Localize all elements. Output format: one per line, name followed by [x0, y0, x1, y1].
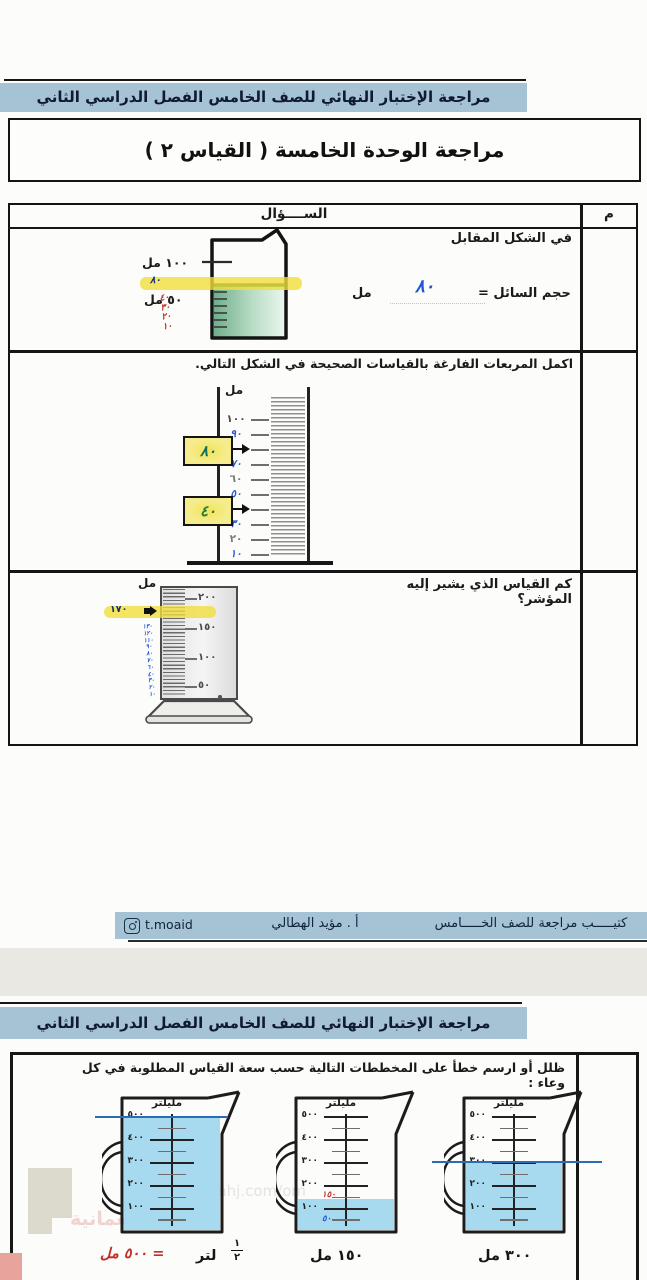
- cylinder-figure: مل ١٠٠ ٩٠ ٧٠ ٦٠ ٥٠ ٣٠ ٢٠ ١٠ ٨٠ ٤٠: [183, 383, 335, 573]
- q3-prompt: كم القياس الذي يشير إليه المؤشر؟: [380, 577, 572, 607]
- instagram-icon-dot: [135, 921, 137, 923]
- jug-300-caption: ٣٠٠ مل: [478, 1248, 532, 1264]
- tick: [251, 434, 269, 436]
- tick: [251, 419, 269, 421]
- scale-10: ١٠: [223, 548, 249, 560]
- table-header-rule: [8, 227, 638, 229]
- jug-half-litre-unit: لتر: [196, 1248, 216, 1264]
- q1-answer-unit: مل: [352, 286, 372, 301]
- fraction-denominator: ٢: [230, 1252, 244, 1263]
- tick: [251, 554, 269, 556]
- tick: [251, 449, 269, 451]
- answer-box-80: ٨٠: [183, 436, 233, 466]
- q3-unit-label: مل: [138, 576, 156, 590]
- tick: [251, 524, 269, 526]
- q1-handwritten-level: ٨٠: [150, 275, 161, 286]
- scale-zero-dot: [218, 695, 222, 699]
- jug-half-litre-drawn-line: [95, 1116, 228, 1118]
- scale-50: ٥٠: [198, 680, 228, 691]
- scale-60: ٦٠: [223, 473, 249, 485]
- pointer-arrow: [150, 606, 157, 616]
- answer-box-40: ٤٠: [183, 496, 233, 526]
- tick: [251, 494, 269, 496]
- answer-box-40-value: ٤٠: [200, 502, 216, 520]
- tick: [251, 509, 269, 511]
- q3-side-annotations: ١٣٠ ١٢٠ ١١٠ ٩٠ ٨٠ ٧٠ ٦٠ ٤٠ ٣٠ ٢٠ ١٠: [139, 624, 160, 700]
- jug-300-drawn-line: [432, 1161, 602, 1163]
- jug-300: ٥٠٠ ٤٠٠ ٣٠٠ ٢٠٠ ١٠٠ مليلتر: [444, 1090, 589, 1242]
- num-col-rule: [580, 203, 583, 746]
- jug-150: ٥٠٠ ٤٠٠ ٣٠٠ ٢٠٠ ١٠٠ مليلتر ١٥٠ ٥٠: [276, 1090, 421, 1242]
- q1-prompt: في الشكل المقابل: [440, 231, 572, 246]
- scale-200: ٢٠٠: [198, 592, 228, 603]
- col-header-num: م: [580, 206, 638, 222]
- cyl3-base: [144, 699, 254, 727]
- scale-20: ٢٠: [223, 533, 249, 545]
- p2-table-top: [10, 1052, 639, 1055]
- jug-outline: [276, 1090, 421, 1242]
- jug-outline: [444, 1090, 589, 1242]
- instagram-icon: [124, 918, 140, 934]
- scanned-worksheet: مراجعة الإختبار النهائي للصف الخامس الفص…: [0, 0, 647, 1280]
- p2-table-left: [10, 1052, 13, 1280]
- q3-pointer-value: ١٧٠: [110, 604, 127, 615]
- scale-100: ١٠٠: [198, 652, 228, 663]
- cyl-base-line: [187, 561, 333, 565]
- tick: [185, 598, 197, 600]
- scale-100: ١٠٠: [223, 413, 249, 425]
- footer-booklet: كتيـــــب مراجعة للصف الخـــــامس: [425, 916, 637, 931]
- footer-teacher: أ . مؤيد الهطالي: [255, 916, 375, 931]
- page2-header-bar: مراجعة الإختبار النهائي للصف الخامس الفص…: [0, 1007, 527, 1039]
- unit-title-box: مراجعة الوحدة الخامسة ( القياس ٢ ): [8, 118, 641, 182]
- tick: [185, 686, 197, 688]
- col-header-question: الســــؤال: [8, 206, 580, 222]
- footer-rule: [128, 940, 647, 942]
- arrow-head: [242, 444, 250, 454]
- jug-half-litre-hw-answer: = ٥٠٠ مل: [100, 1246, 164, 1262]
- tick: [251, 464, 269, 466]
- jug-150-caption: ١٥٠ مل: [310, 1248, 364, 1264]
- graduated-cylinder-figure: مل ٢٠٠ ١٥٠ ١٠٠ ٥٠ ١٧٠ ١٣٠ ١٢٠ ١١٠ ٩٠ ٨٠ …: [118, 574, 268, 744]
- tick: [185, 658, 197, 660]
- q4-prompt: ظلل أو ارسم خطأ على المخططات التالية حسب…: [60, 1060, 565, 1090]
- answer-box-80-value: ٨٠: [200, 442, 216, 460]
- fraction-half: ١ ٢: [230, 1238, 244, 1263]
- q2-prompt: اكمل المربعات الفارغة بالقياسات الصحيحة …: [185, 356, 573, 371]
- cyl-ruler-ticks: [271, 397, 305, 557]
- p2-table-right: [636, 1052, 639, 1280]
- beaker-label-100: ١٠٠ مل: [142, 255, 188, 270]
- q1-highlight: [140, 277, 302, 290]
- jug-half-litre: ٥٠٠ ٤٠٠ ٣٠٠ ٢٠٠ ١٠٠ مليلتر: [102, 1090, 247, 1242]
- page1-header-bar: مراجعة الإختبار النهائي للصف الخامس الفص…: [0, 83, 527, 112]
- tick: [251, 479, 269, 481]
- red-note: ١٠: [159, 322, 176, 333]
- fraction-bar: [231, 1250, 243, 1251]
- q1-answer-line: [390, 303, 485, 304]
- fraction-numerator: ١: [230, 1238, 244, 1249]
- jug-outline: [102, 1090, 247, 1242]
- row1-rule: [8, 350, 638, 353]
- tick: [185, 628, 197, 630]
- q2-unit-label: مل: [225, 383, 243, 397]
- instagram-handle: t.moaid: [145, 917, 193, 932]
- cyl-left-wall: [217, 387, 220, 561]
- arrow-head: [242, 504, 250, 514]
- q1-answer-handwritten: ٨٠: [415, 276, 434, 297]
- page1-top-rule: [4, 79, 526, 81]
- cyl-right-wall: [307, 387, 310, 561]
- q1-answer-label: حجم السائل =: [478, 286, 571, 301]
- scale-150: ١٥٠: [198, 622, 228, 633]
- tick: [251, 539, 269, 541]
- page2-top-rule: [0, 1002, 522, 1004]
- unit-title: مراجعة الوحدة الخامسة ( القياس ٢ ): [145, 138, 505, 162]
- instagram-icon-lens: [129, 923, 136, 930]
